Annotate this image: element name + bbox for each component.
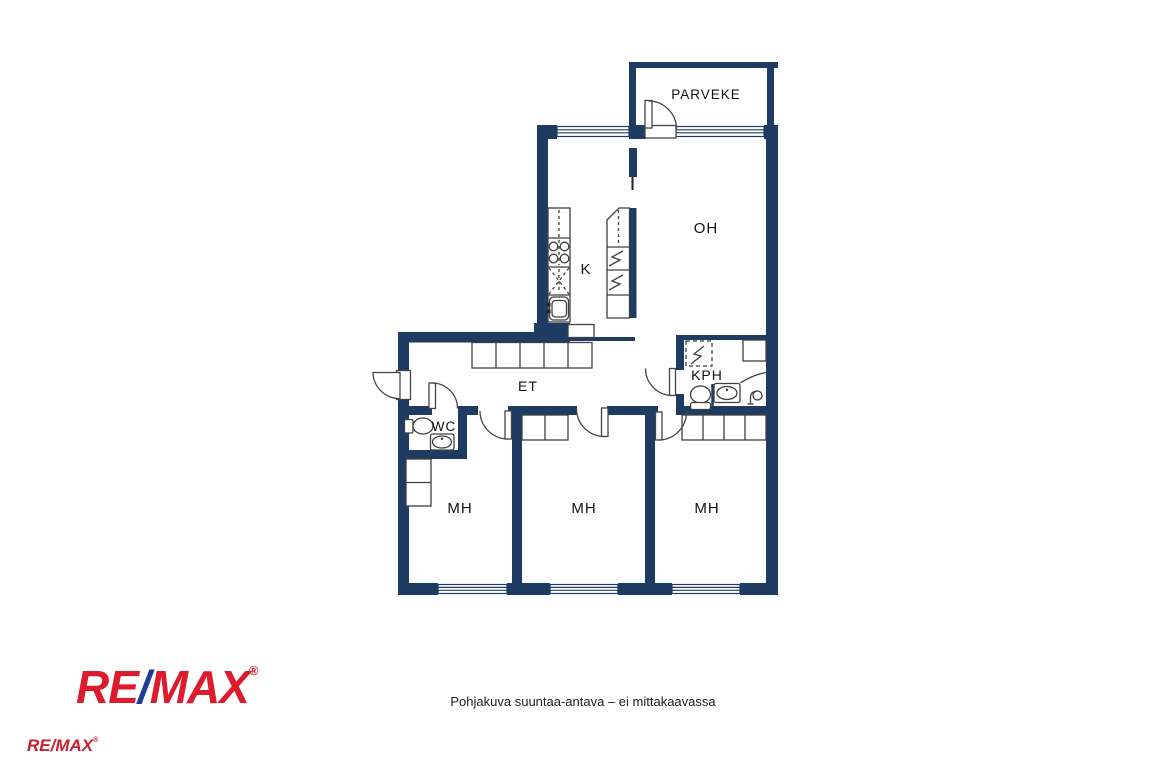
small-registered-mark: ® [93, 737, 98, 744]
kph-door [646, 369, 676, 396]
shower-icon [740, 373, 766, 405]
window-top-left [557, 127, 629, 137]
wc-toilet-icon [405, 418, 434, 434]
window-balcony [676, 127, 764, 137]
entrance-door [373, 371, 411, 400]
room-label-k: K [580, 261, 591, 278]
small-logo-text: RE/MAX [27, 736, 93, 755]
bedroom1-door [480, 411, 512, 439]
disclaimer-text: Pohjakuva suuntaa-antava – ei mittakaava… [383, 694, 783, 709]
registered-mark: ® [249, 663, 258, 678]
balcony-door [645, 101, 677, 139]
remax-logo-small: RE/MAX® [27, 736, 98, 756]
bathroom-cabinet [743, 340, 766, 361]
room-label-parveke: PARVEKE [671, 87, 741, 102]
bedroom3-closets [682, 415, 766, 440]
hall-closets [472, 343, 592, 369]
wc-door [429, 383, 458, 409]
window-bedroom1 [438, 585, 507, 594]
room-label-mh1: MH [447, 500, 472, 517]
room-label-wc: WC [432, 419, 457, 434]
room-label-mh3: MH [694, 500, 719, 517]
window-bedroom3 [672, 585, 740, 594]
bedroom2-door [577, 408, 609, 437]
wc-sink-icon [431, 434, 455, 450]
remax-logo: RE/MAX® [76, 660, 258, 714]
fridge-cabinet [607, 208, 630, 318]
counter-peninsula [568, 325, 594, 338]
room-label-mh2: MH [571, 500, 596, 517]
washing-machine-icon [686, 341, 712, 366]
bedroom2-closets [522, 415, 568, 440]
room-label-oh: OH [694, 220, 719, 237]
floor-plan: PARVEKE OH K ET KPH WC MH MH MH [0, 0, 1152, 768]
logo-max: MAX [150, 661, 249, 713]
room-label-kph: KPH [691, 367, 723, 383]
room-labels: PARVEKE OH K ET KPH WC MH MH MH [432, 87, 741, 517]
floor-plan-page: PARVEKE OH K ET KPH WC MH MH MH RE/MAX® … [0, 0, 1152, 768]
left-wall-upper [537, 125, 548, 342]
logo-slash: / [138, 661, 150, 713]
kitchen-sink-icon [547, 297, 569, 320]
logo-re: RE [76, 661, 138, 713]
kph-sink-icon [714, 384, 740, 403]
window-bedroom2 [550, 585, 618, 594]
kph-toilet-icon [691, 386, 711, 410]
bedroom1-closets [406, 459, 431, 506]
room-label-et: ET [518, 378, 538, 394]
right-wall [766, 125, 778, 595]
